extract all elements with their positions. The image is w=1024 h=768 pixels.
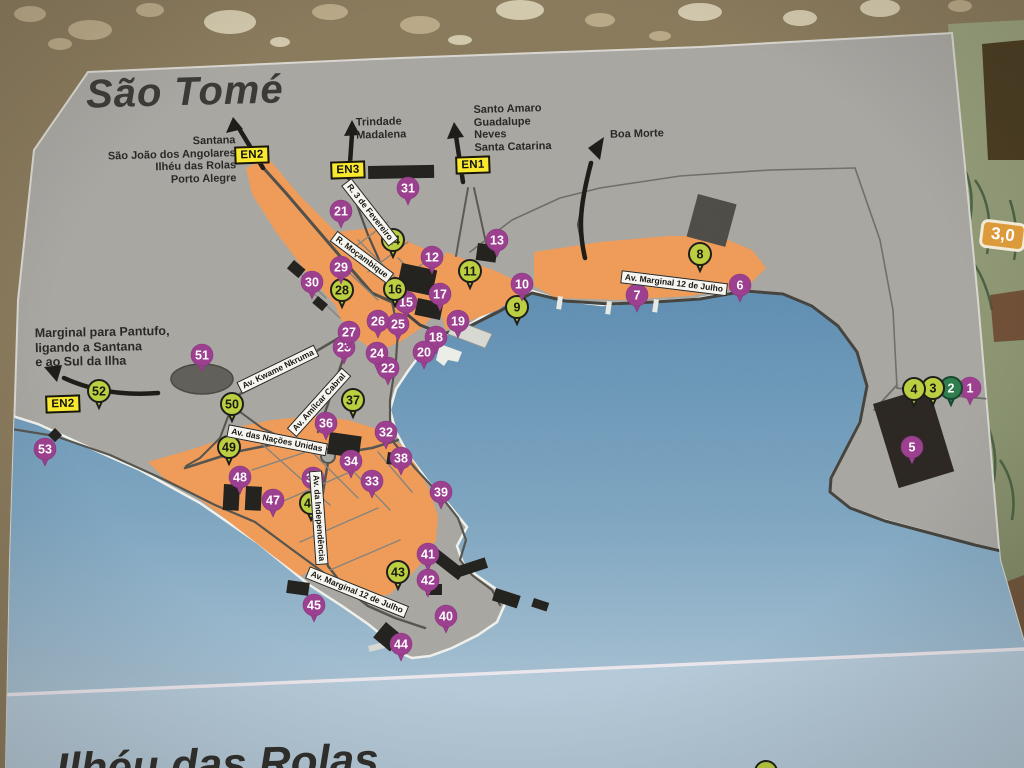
map-canvas: 1234567891011121314151617181920212223242… (0, 0, 1024, 768)
photographed-map-page: 1234567891011121314151617181920212223242… (0, 0, 1024, 768)
photo-vignette (0, 0, 1024, 768)
